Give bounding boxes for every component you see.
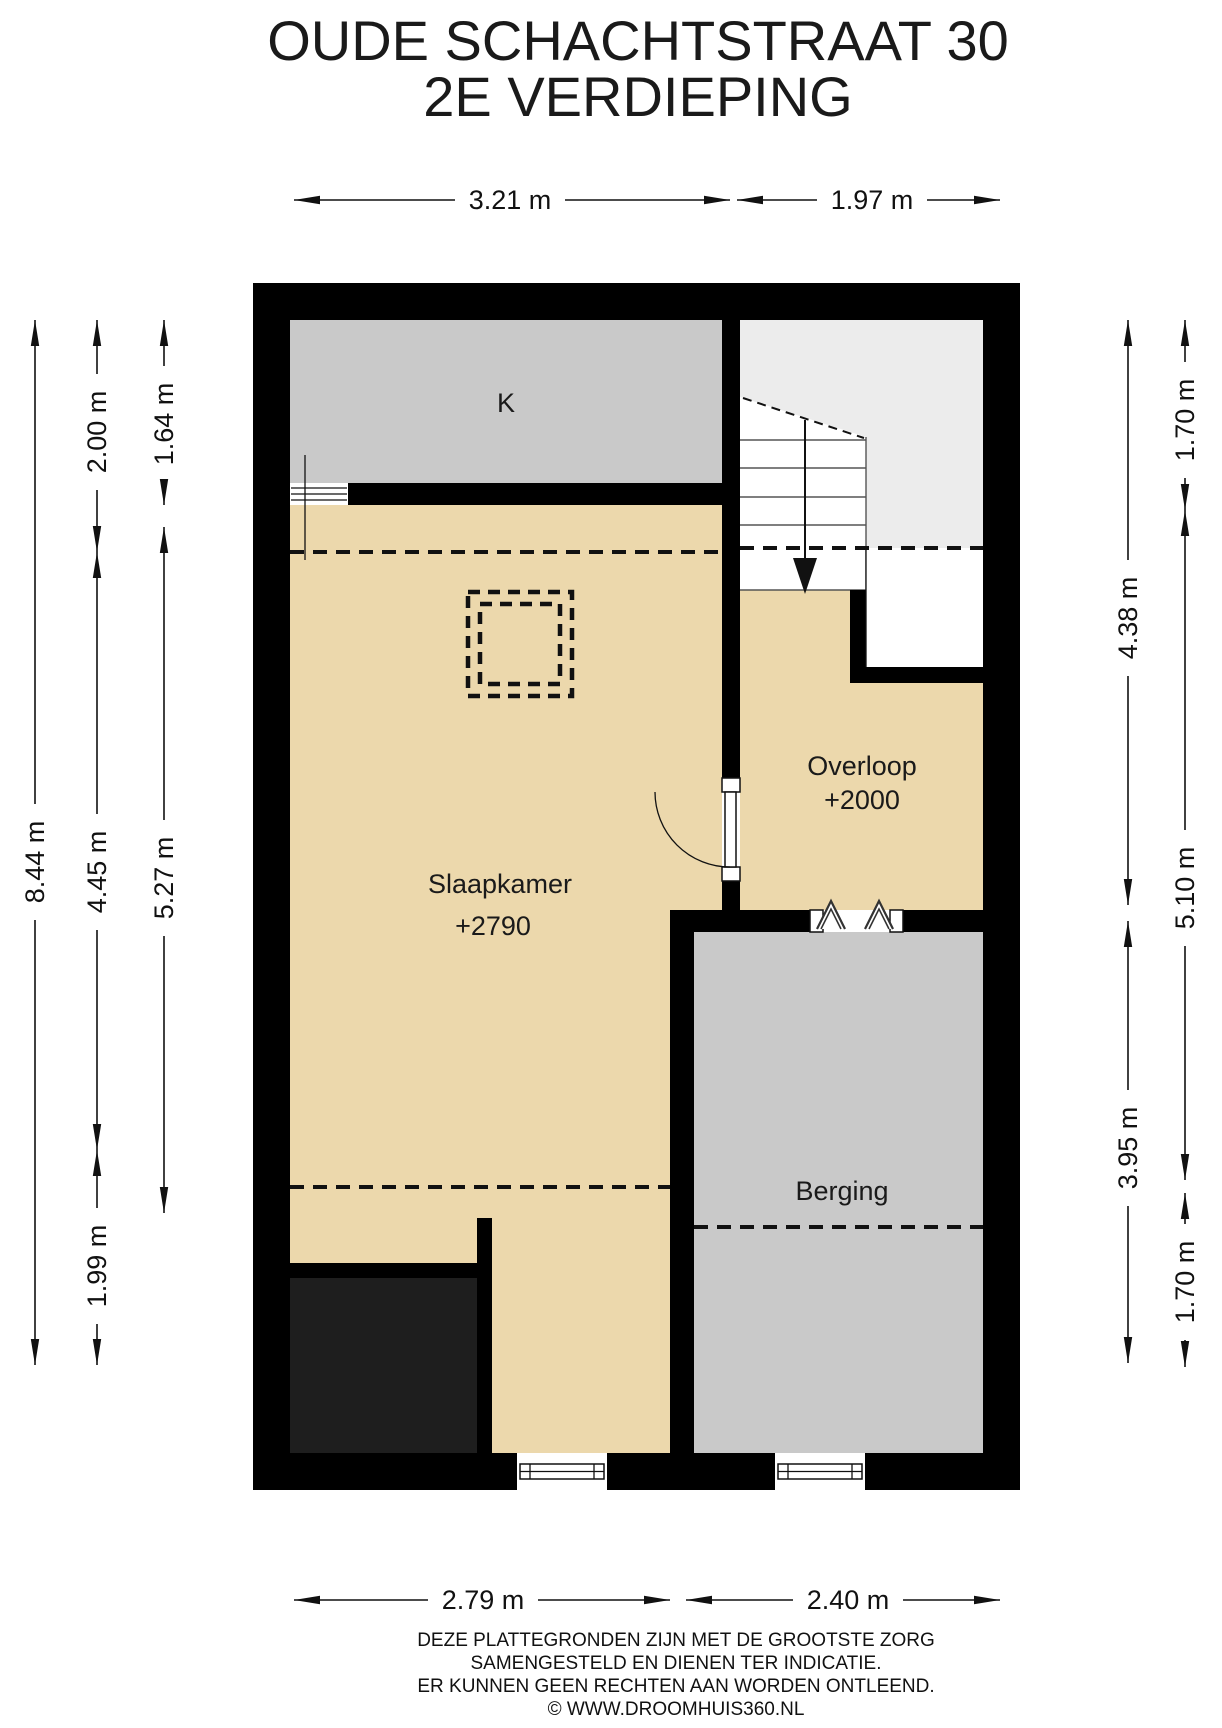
dim-label: 1.99 m [82,1225,112,1308]
dim-label: 2.40 m [807,1585,890,1615]
stair-landing [866,548,983,667]
dim-label: 1.97 m [831,185,914,215]
page-title-line2: 2E VERDIEPING [423,65,852,128]
room-overloop-height: +2000 [824,785,900,815]
dim-bottom-2: 2.40 m [686,1585,1000,1615]
bottom-window-berging [775,1453,865,1490]
floor-plan: OUDE SCHACHTSTRAAT 30 2E VERDIEPING [0,0,1222,1728]
bottom-window-slaapkamer [517,1453,607,1490]
dim-right-170-top: 1.70 m [1170,320,1200,510]
dim-left-200: 2.00 m [82,320,112,552]
dim-top-2: 1.97 m [737,185,1000,215]
dim-label: 2.79 m [442,1585,525,1615]
dim-label: 4.45 m [82,831,112,914]
dim-label: 2.00 m [82,391,112,474]
floorplan-page: OUDE SCHACHTSTRAAT 30 2E VERDIEPING [0,0,1222,1728]
dim-label: 3.95 m [1113,1107,1143,1190]
dim-right-438: 4.38 m [1113,320,1143,905]
dim-label: 1.70 m [1170,1241,1200,1324]
room-slaapkamer-upper [290,505,722,910]
dim-right-510: 5.10 m [1170,510,1200,1180]
room-k-label: K [497,388,515,418]
dim-right-170-bottom: 1.70 m [1170,1193,1200,1367]
footer-copyright: © WWW.DROOMHUIS360.NL [548,1699,805,1720]
room-slaapkamer-height: +2790 [455,911,531,941]
dim-right-395: 3.95 m [1113,921,1143,1363]
dim-label: 5.10 m [1170,847,1200,930]
void-top-wall [290,1263,477,1278]
page-title-line1: OUDE SCHACHTSTRAAT 30 [267,9,1009,72]
dim-left-844: 8.44 m [20,320,50,1365]
dim-top-1: 3.21 m [294,185,730,215]
dim-label: 1.70 m [1170,379,1200,462]
room-overloop-label: Overloop [807,751,917,781]
door-leaf [725,792,736,867]
dim-left-164: 1.64 m [149,320,179,505]
footer-disclaimer: DEZE PLATTEGRONDEN ZIJN MET DE GROOTSTE … [417,1630,935,1720]
dim-left-199: 1.99 m [82,1150,112,1365]
room-overloop-left [740,590,866,910]
footer-line2: SAMENGESTELD EN DIENEN TER INDICATIE. [470,1653,881,1674]
room-slaapkamer-label: Slaapkamer [428,869,572,899]
door-post [722,867,740,881]
footer-line3: ER KUNNEN GEEN RECHTEN AAN WORDEN ONTLEE… [417,1676,934,1697]
door-post [722,778,740,792]
plan-body: K Slaapkamer +2790 Overloop +2000 Bergin… [253,283,1020,1490]
footer-line1: DEZE PLATTEGRONDEN ZIJN MET DE GROOTSTE … [417,1630,935,1651]
void-right-wall [477,1218,492,1453]
dim-label: 4.38 m [1113,577,1143,660]
dim-label: 1.64 m [149,383,179,466]
room-berging-label: Berging [795,1176,888,1206]
dim-left-527: 5.27 m [149,527,179,1213]
landing-bottom-wall [850,667,983,683]
dim-left-445: 4.45 m [82,552,112,1150]
void-area [290,1278,477,1453]
dim-label: 8.44 m [20,821,50,904]
dim-label: 3.21 m [469,185,552,215]
dim-bottom-1: 2.79 m [294,1585,670,1615]
dim-label: 5.27 m [149,837,179,920]
